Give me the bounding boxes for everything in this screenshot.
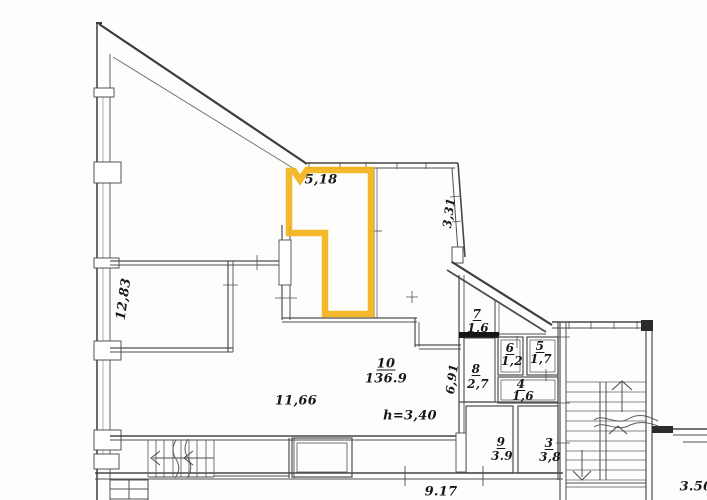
room-9-area: 3.9 xyxy=(491,450,513,462)
floor-plan-drawing xyxy=(0,0,707,500)
room-8-area: 2,7 xyxy=(467,378,489,390)
dimension-top-width: 5,18 xyxy=(305,174,338,187)
highlighted-room-outline xyxy=(289,170,371,314)
room-5-number: 5 xyxy=(536,340,545,352)
dimension-ceiling-height: h=3,40 xyxy=(383,410,437,423)
room-9-number: 9 xyxy=(497,436,506,448)
room-10-area: 136.9 xyxy=(365,373,407,386)
room-3-number: 3 xyxy=(545,437,554,449)
room-10-number: 10 xyxy=(377,358,396,371)
room-5-area: 1,7 xyxy=(530,353,552,365)
room-7-area: 1,6 xyxy=(467,322,489,334)
room-8-number: 8 xyxy=(472,363,481,375)
room-4-area: 1,6 xyxy=(512,390,534,402)
room-7-number: 7 xyxy=(473,308,482,320)
dimension-bottom-right: 3.50 xyxy=(680,481,707,494)
floor-plan: 5,18 3,31 12,83 6,91 11,66 h=3,40 9.17 3… xyxy=(0,0,707,500)
room-6-area: 1,2 xyxy=(501,355,523,367)
dimension-lower-left-width: 11,66 xyxy=(275,395,317,408)
dimension-bottom-width: 9.17 xyxy=(425,486,458,499)
room-3-area: 3,8 xyxy=(539,451,561,463)
room-6-number: 6 xyxy=(506,342,515,354)
